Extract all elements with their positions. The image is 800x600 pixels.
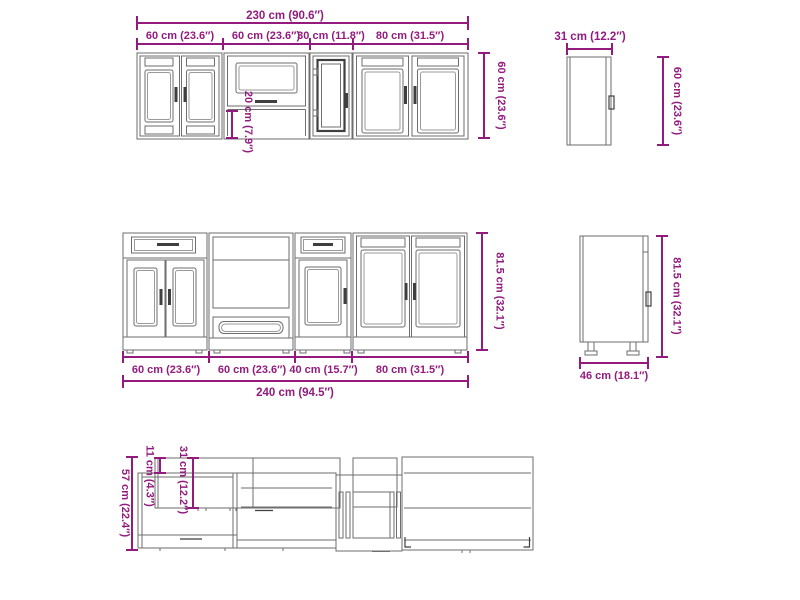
base-side-height-label: 81.5 cm (32.1″) <box>671 257 683 335</box>
cabinet-foot <box>585 342 597 355</box>
wall-height-dimension-line <box>478 53 490 138</box>
wall-height-label: 60 cm (23.6″) <box>495 61 507 130</box>
base-cabinet-40-drawer-door <box>295 233 351 353</box>
base-segment-label-1: 60 cm (23.6″) <box>132 364 201 376</box>
wall-cabinet-side-view: 31 cm (12.2″) 60 cm (23.6″) <box>554 31 683 145</box>
plan-upper-depth-label: 31 cm (12.2″) <box>177 446 189 515</box>
plan-wall-cabinets-overlay <box>155 458 397 511</box>
wall-cabinet-30-glass-door <box>310 53 352 139</box>
dimension-diagram-page: 230 cm (90.6″) 60 cm (23.6″) 60 cm (23.6… <box>0 0 800 600</box>
wall-segment-label-1: 60 cm (23.6″) <box>146 30 215 42</box>
wall-cabinet-60-two-door <box>137 53 222 139</box>
door-handle <box>346 93 349 108</box>
base-side-height-dimension-line <box>656 236 668 357</box>
cabinet-foot <box>627 342 639 355</box>
door-handle <box>414 86 417 104</box>
base-segment-label-2: 60 cm (23.6″) <box>218 364 287 376</box>
base-height-label: 81.5 cm (32.1″) <box>494 252 506 330</box>
door-handle <box>255 100 277 103</box>
door-handle <box>168 289 171 305</box>
door-handle <box>175 87 178 102</box>
wall-side-depth-label: 31 cm (12.2″) <box>554 31 626 43</box>
door-handle <box>184 87 187 102</box>
wall-open-section-label: 20 cm (7.9″) <box>242 91 254 153</box>
base-height-dimension-line <box>476 233 488 350</box>
base-cabinet-80-two-door <box>353 233 467 353</box>
door-handle <box>344 288 347 304</box>
wall-total-width-label: 230 cm (90.6″) <box>246 10 324 22</box>
base-cabinet-60-appliance <box>209 233 293 353</box>
wall-side-depth-dimension-line <box>567 43 612 55</box>
plan-base-cabinet-3 <box>336 475 402 552</box>
base-cabinets-front-view: 81.5 cm (32.1″) 60 cm (23.6″) 60 cm (23.… <box>123 233 506 399</box>
base-segment-label-3: 40 cm (15.7″) <box>289 364 358 376</box>
door-handle <box>413 283 416 300</box>
wall-segment-label-4: 80 cm (31.5″) <box>376 30 445 42</box>
door-handle <box>405 283 408 300</box>
base-cabinet-side-view: 81.5 cm (32.1″) 46 cm (18.1″) <box>580 236 683 382</box>
base-side-depth-dimension-line <box>580 357 648 369</box>
wall-cabinet-60-flip-door <box>224 53 309 139</box>
door-handle <box>160 289 163 305</box>
wall-segment-label-3: 30 cm (11.8″) <box>297 30 365 42</box>
wall-segment-label-2: 60 cm (23.6″) <box>232 30 301 42</box>
base-cabinet-60-two-door <box>123 233 207 353</box>
door-handle <box>404 86 407 104</box>
wall-cabinet-80-two-door <box>353 53 468 139</box>
top-plan-view: 57 cm (22.4″) 11 cm (4.3″) 31 cm (12.2″) <box>119 445 533 553</box>
base-side-depth-label: 46 cm (18.1″) <box>580 370 649 382</box>
drawer-handle <box>313 243 333 246</box>
plan-base-cabinet-2 <box>237 473 336 551</box>
drawer-handle <box>157 243 179 246</box>
base-segment-dimension-line <box>123 351 468 363</box>
plan-base-cabinet-4 <box>402 457 533 553</box>
plan-overhang-label: 11 cm (4.3″) <box>144 445 156 507</box>
dimension-diagram: 230 cm (90.6″) 60 cm (23.6″) 60 cm (23.6… <box>0 0 800 600</box>
plan-total-depth-label: 57 cm (22.4″) <box>119 469 131 538</box>
wall-side-height-dimension-line <box>657 57 669 145</box>
base-total-width-label: 240 cm (94.5″) <box>256 387 334 399</box>
wall-side-height-label: 60 cm (23.6″) <box>671 67 683 136</box>
base-segment-label-4: 80 cm (31.5″) <box>376 364 445 376</box>
wall-cabinets-front-view: 230 cm (90.6″) 60 cm (23.6″) 60 cm (23.6… <box>137 10 507 153</box>
